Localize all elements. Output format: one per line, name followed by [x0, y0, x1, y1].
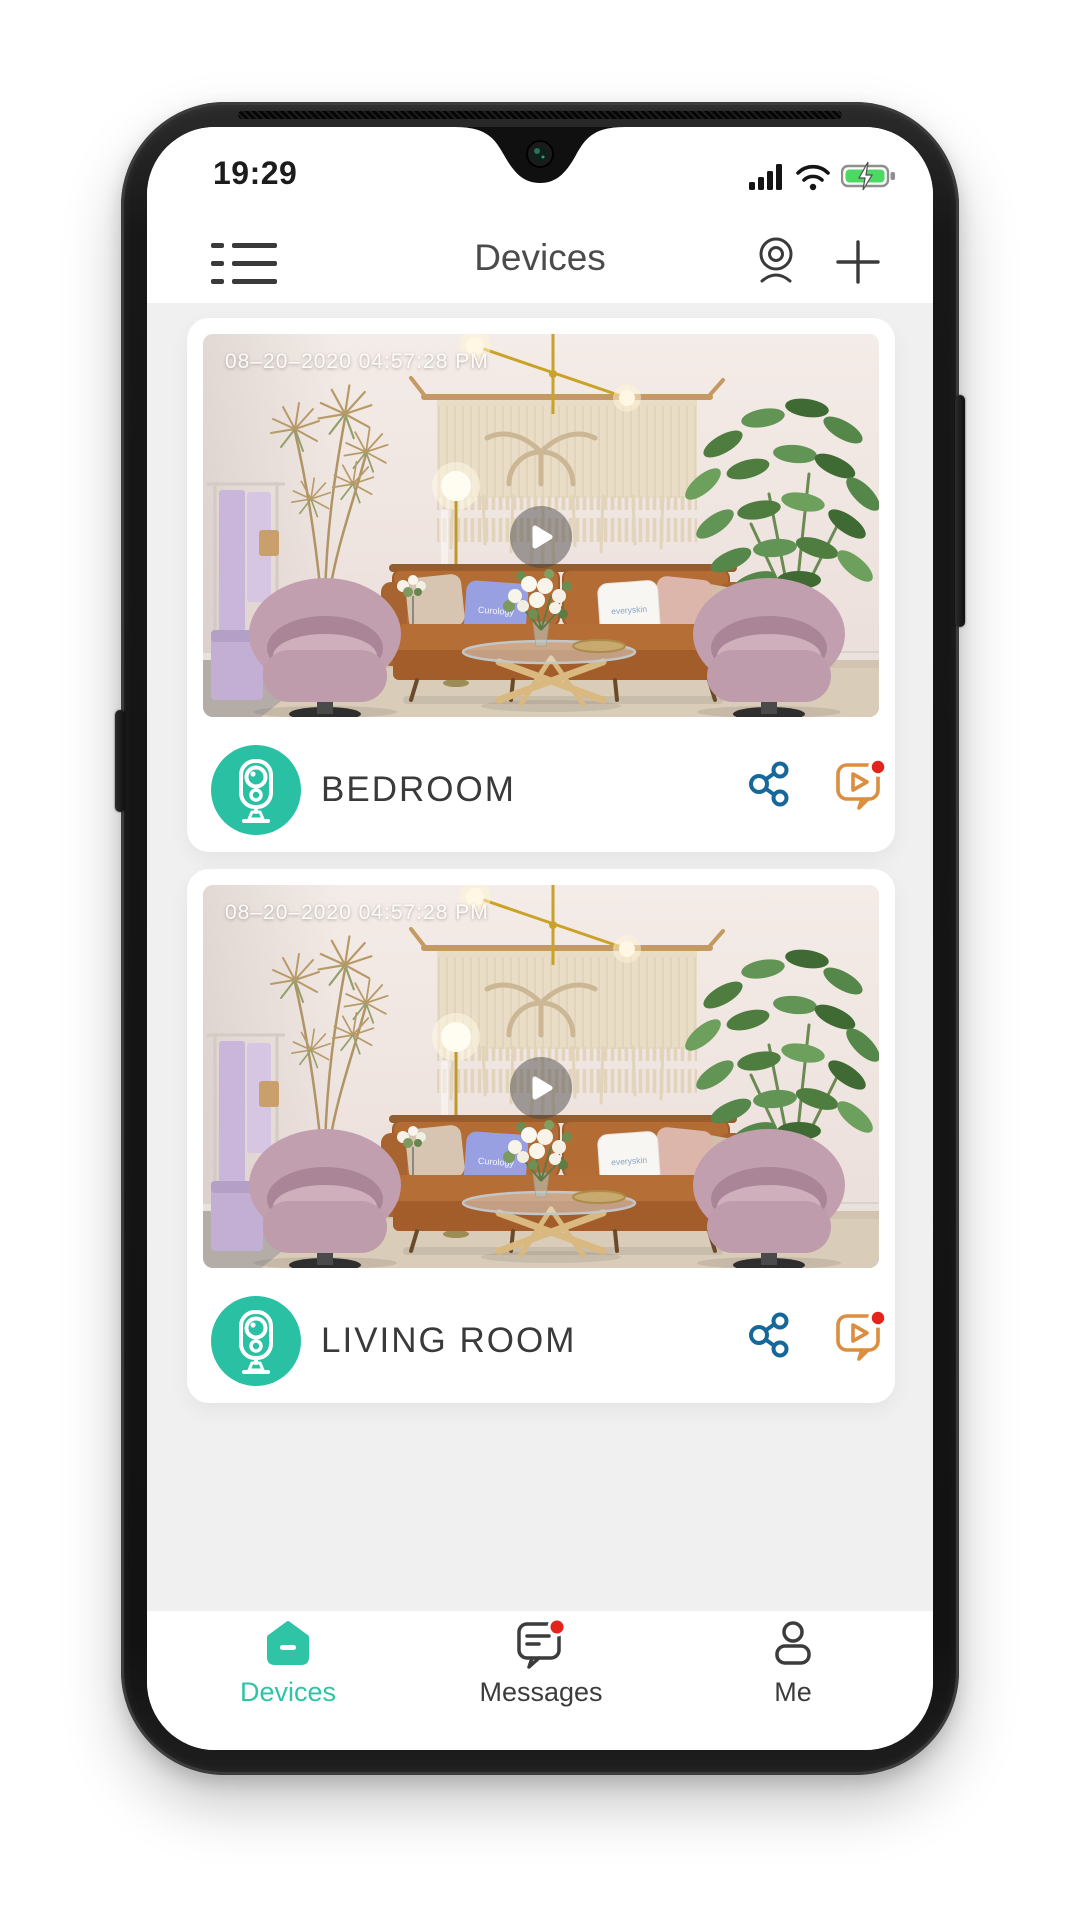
tab-devices[interactable]: Devices [198, 1611, 378, 1731]
preview-timestamp: 08–20–2020 04:57:28 PM [225, 901, 489, 925]
device-list: 08–20–2020 04:57:28 PM [147, 303, 933, 1611]
camera-device-icon [211, 745, 301, 835]
phone-frame: 19:29 [121, 102, 959, 1775]
preview-timestamp: 08–20–2020 04:57:28 PM [225, 350, 489, 374]
device-row: LIVING ROOM [187, 1268, 895, 1403]
tab-label: Me [703, 1677, 883, 1708]
device-card-bedroom[interactable]: 08–20–2020 04:57:28 PM [187, 318, 895, 852]
devices-tab-icon [261, 1617, 315, 1671]
play-icon [526, 1072, 556, 1104]
device-name: LIVING ROOM [321, 1321, 576, 1361]
camera-device-icon [211, 1296, 301, 1386]
tab-me[interactable]: Me [703, 1611, 883, 1731]
share-icon [751, 764, 787, 805]
device-card-living-room[interactable]: 08–20–2020 04:57:28 PM [187, 869, 895, 1403]
camera-preview[interactable]: 08–20–2020 04:57:28 PM [203, 334, 879, 717]
webcam-icon [761, 239, 791, 281]
notification-dot [870, 759, 886, 775]
me-tab-icon [766, 1617, 820, 1671]
add-device-button[interactable] [835, 239, 881, 285]
wifi-icon [795, 163, 831, 191]
share-button[interactable] [747, 761, 793, 807]
earpiece-speaker [238, 111, 841, 119]
messages-tab-icon [512, 1617, 570, 1673]
play-button[interactable] [510, 506, 572, 568]
share-icon [751, 1315, 787, 1356]
camera-preview[interactable]: 08–20–2020 04:57:28 PM [203, 885, 879, 1268]
share-button[interactable] [747, 1312, 793, 1358]
notch [455, 127, 625, 187]
power-button [955, 395, 965, 627]
device-messages-button[interactable] [831, 755, 889, 813]
tab-messages[interactable]: Messages [451, 1611, 631, 1731]
tab-bar: Devices Messages [147, 1611, 933, 1750]
play-icon [526, 521, 556, 553]
page-background: 19:29 [0, 0, 1080, 1920]
webcam-contacts-button[interactable] [751, 235, 801, 287]
plus-icon [838, 242, 878, 282]
volume-button [115, 710, 125, 812]
notification-dot [549, 1619, 565, 1635]
tab-label: Messages [451, 1677, 631, 1708]
notification-dot [870, 1310, 886, 1326]
device-messages-button[interactable] [831, 1306, 889, 1364]
signal-icon [749, 163, 785, 191]
device-row: BEDROOM [187, 717, 895, 852]
status-icons [749, 161, 899, 191]
page-title: Devices [147, 237, 933, 279]
device-name: BEDROOM [321, 770, 516, 810]
phone-screen: 19:29 [147, 127, 933, 1750]
status-time: 19:29 [213, 155, 297, 192]
play-button[interactable] [510, 1057, 572, 1119]
battery-charging-icon [841, 161, 899, 191]
tab-label: Devices [198, 1677, 378, 1708]
